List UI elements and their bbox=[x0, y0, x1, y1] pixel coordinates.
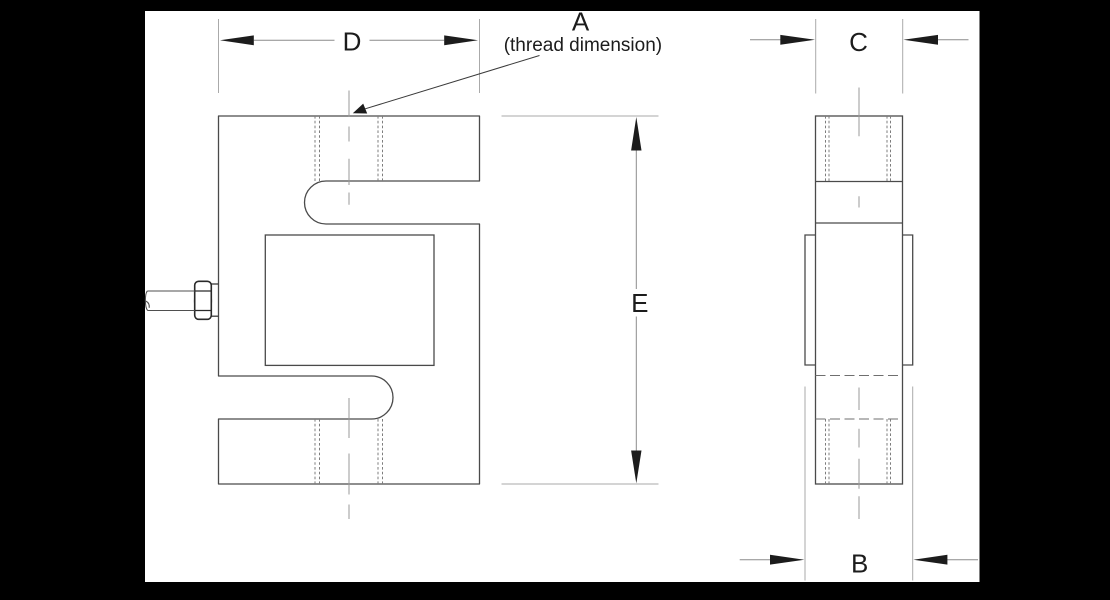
svg-text:C: C bbox=[849, 27, 868, 57]
svg-text:(thread dimension): (thread dimension) bbox=[504, 35, 662, 56]
svg-text:B: B bbox=[851, 549, 868, 579]
svg-text:A: A bbox=[572, 7, 590, 37]
svg-text:E: E bbox=[631, 288, 648, 318]
svg-text:D: D bbox=[343, 27, 362, 57]
